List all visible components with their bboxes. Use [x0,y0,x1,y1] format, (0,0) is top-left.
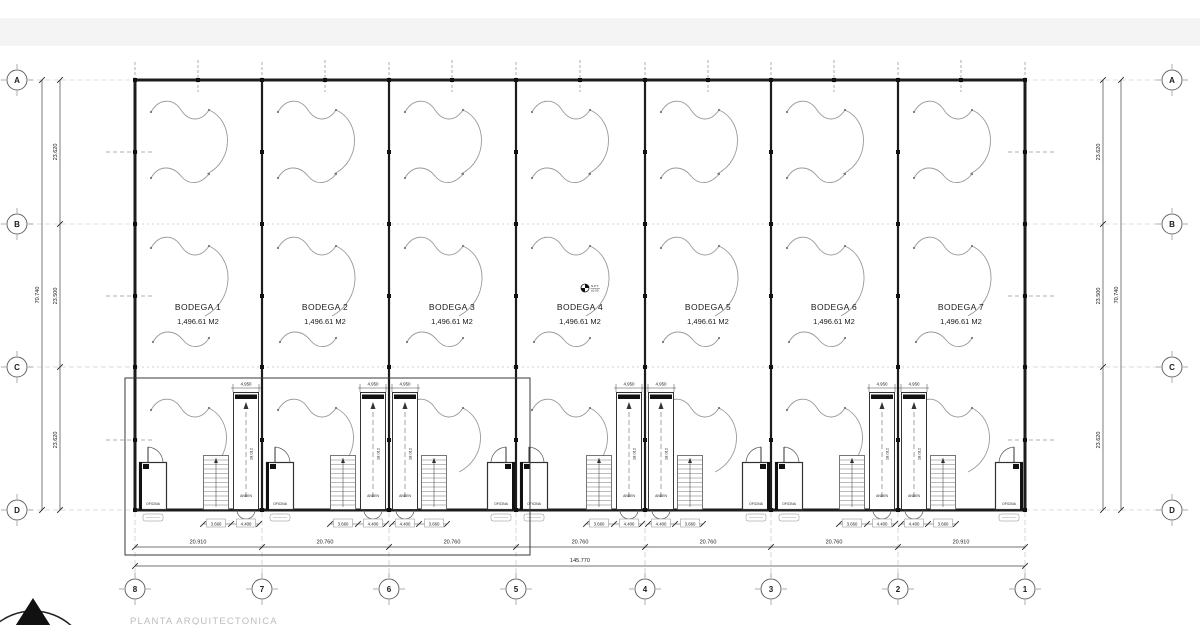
stair-dim: 3.660 [685,522,696,527]
oficina-room [775,447,803,510]
bodega-area: 1,496.61 M2 [813,317,855,326]
bodega-labels: BODEGA 1 1,496.61 M2 BODEGA 2 1,496.61 M… [175,302,984,326]
dim-bc-left: 23.500 [53,288,59,305]
bodega-name: BODEGA 2 [302,302,348,312]
stairs [204,456,229,510]
grid-row-label: A [14,76,20,85]
dim-cd-left: 23.620 [53,432,59,449]
oficina-label: OFICINA [1002,502,1016,506]
oficina-room [520,447,548,510]
bodega-name: BODEGA 7 [938,302,984,312]
bodega-area: 1,496.61 M2 [304,317,346,326]
oficina-room [139,447,167,510]
anden-ramp [390,382,420,510]
bodega-area: 1,496.61 M2 [177,317,219,326]
oficina-label: OFICINA [527,502,541,506]
datum-symbol: N.P.T. ±0.00 [581,284,600,293]
stairs [422,456,447,510]
drawing-caption: PLANTA ARQUITECTONICA [130,616,278,625]
stairs [587,456,612,510]
bodega-name: BODEGA 5 [685,302,731,312]
anden-ramp [899,382,929,510]
grid-col-label: 4 [643,585,648,594]
interior-walls [262,80,898,510]
grid-row-label: D [14,506,20,515]
grid-row-label: A [1169,76,1175,85]
grid-row-label: C [14,363,20,372]
bottom-dimensions: 3.660 4.400 3.660 4.400 4.400 3.660 3.66… [132,519,1028,569]
side-dimensions: 23.620 23.500 23.620 70.740 23.620 23.50… [35,77,1124,513]
grid-row-label: B [1169,220,1175,229]
door-dim: 4.400 [241,522,252,527]
floor-plan-drawing: 4.950 18.012 ANDEN [0,0,1200,625]
grid-col-label: 8 [133,585,138,594]
oficina-label: OFICINA [494,502,508,506]
total-width-dim: 145.770 [570,558,590,564]
stair-blocks [204,456,956,510]
stair-dim: 3.660 [938,522,949,527]
bodega-name: BODEGA 1 [175,302,221,312]
stair-dim: 3.660 [211,522,222,527]
bodega-area: 1,496.61 M2 [559,317,601,326]
bay-width-dim: 20.760 [826,540,843,546]
oficina-room [743,447,771,510]
stairs [331,456,356,510]
stair-dim: 3.660 [594,522,605,527]
grid-col-label: 7 [260,585,265,594]
grid-row-label: C [1169,363,1175,372]
datum-value: ±0.00 [591,289,599,293]
grid-lines [137,224,1023,367]
top-ticks [135,60,1025,92]
stairs [840,456,865,510]
stair-dim: 3.660 [338,522,349,527]
oficina-label: OFICINA [749,502,763,506]
detail-viewport-box [125,378,530,555]
grid-row-label: B [14,220,20,229]
oficina-label: OFICINA [146,502,160,506]
anden-ramp [231,382,261,510]
oficina-room [488,447,516,510]
bay-width-dim: 20.760 [700,540,717,546]
stair-dim: 3.660 [429,522,440,527]
grid-col-label: 3 [769,585,774,594]
dim-bc-right: 23.500 [1096,288,1102,305]
dim-ab-right: 23.620 [1096,144,1102,161]
bodega-area: 1,496.61 M2 [431,317,473,326]
dim-total-left: 70.740 [35,287,41,304]
north-arrow-icon [0,598,90,625]
oficina-label: OFICINA [273,502,287,506]
anden-ramp [614,382,644,510]
floor-plan-canvas: 4.950 18.012 ANDEN [0,0,1200,625]
dim-ab-left: 23.620 [53,144,59,161]
door-dim: 4.400 [400,522,411,527]
stairs [678,456,703,510]
bay-width-dim: 20.760 [317,540,334,546]
datum-label: N.P.T. [591,284,599,288]
dim-total-right: 70.740 [1114,287,1120,304]
bodega-name: BODEGA 4 [557,302,603,312]
bodega-area: 1,496.61 M2 [940,317,982,326]
door-dim: 4.400 [656,522,667,527]
grid-col-label: 5 [514,585,519,594]
stairs [931,456,956,510]
anden-ramp [358,382,388,510]
oficina-label: OFICINA [782,502,796,506]
bay-width-dim: 20.760 [572,540,589,546]
grid-col-label: 1 [1023,585,1028,594]
dim-cd-right: 23.620 [1096,432,1102,449]
grid-col-label: 6 [387,585,392,594]
grid-col-label: 2 [896,585,901,594]
bay-squiggles [150,101,991,472]
bodega-name: BODEGA 6 [811,302,857,312]
oficina-room [996,447,1024,510]
stair-dim: 3.660 [847,522,858,527]
anden-ramp [646,382,676,510]
bodega-area: 1,496.61 M2 [687,317,729,326]
oficina-room [266,447,294,510]
bodega-name: BODEGA 3 [429,302,475,312]
door-dim: 4.400 [877,522,888,527]
door-dim: 4.400 [909,522,920,527]
grid-row-label: D [1169,506,1175,515]
door-dim: 4.400 [624,522,635,527]
bay-width-dim: 20.910 [190,540,207,546]
bay-width-dim: 20.910 [953,540,970,546]
anden-ramp [867,382,897,510]
bay-width-dim: 20.760 [444,540,461,546]
door-dim: 4.400 [368,522,379,527]
